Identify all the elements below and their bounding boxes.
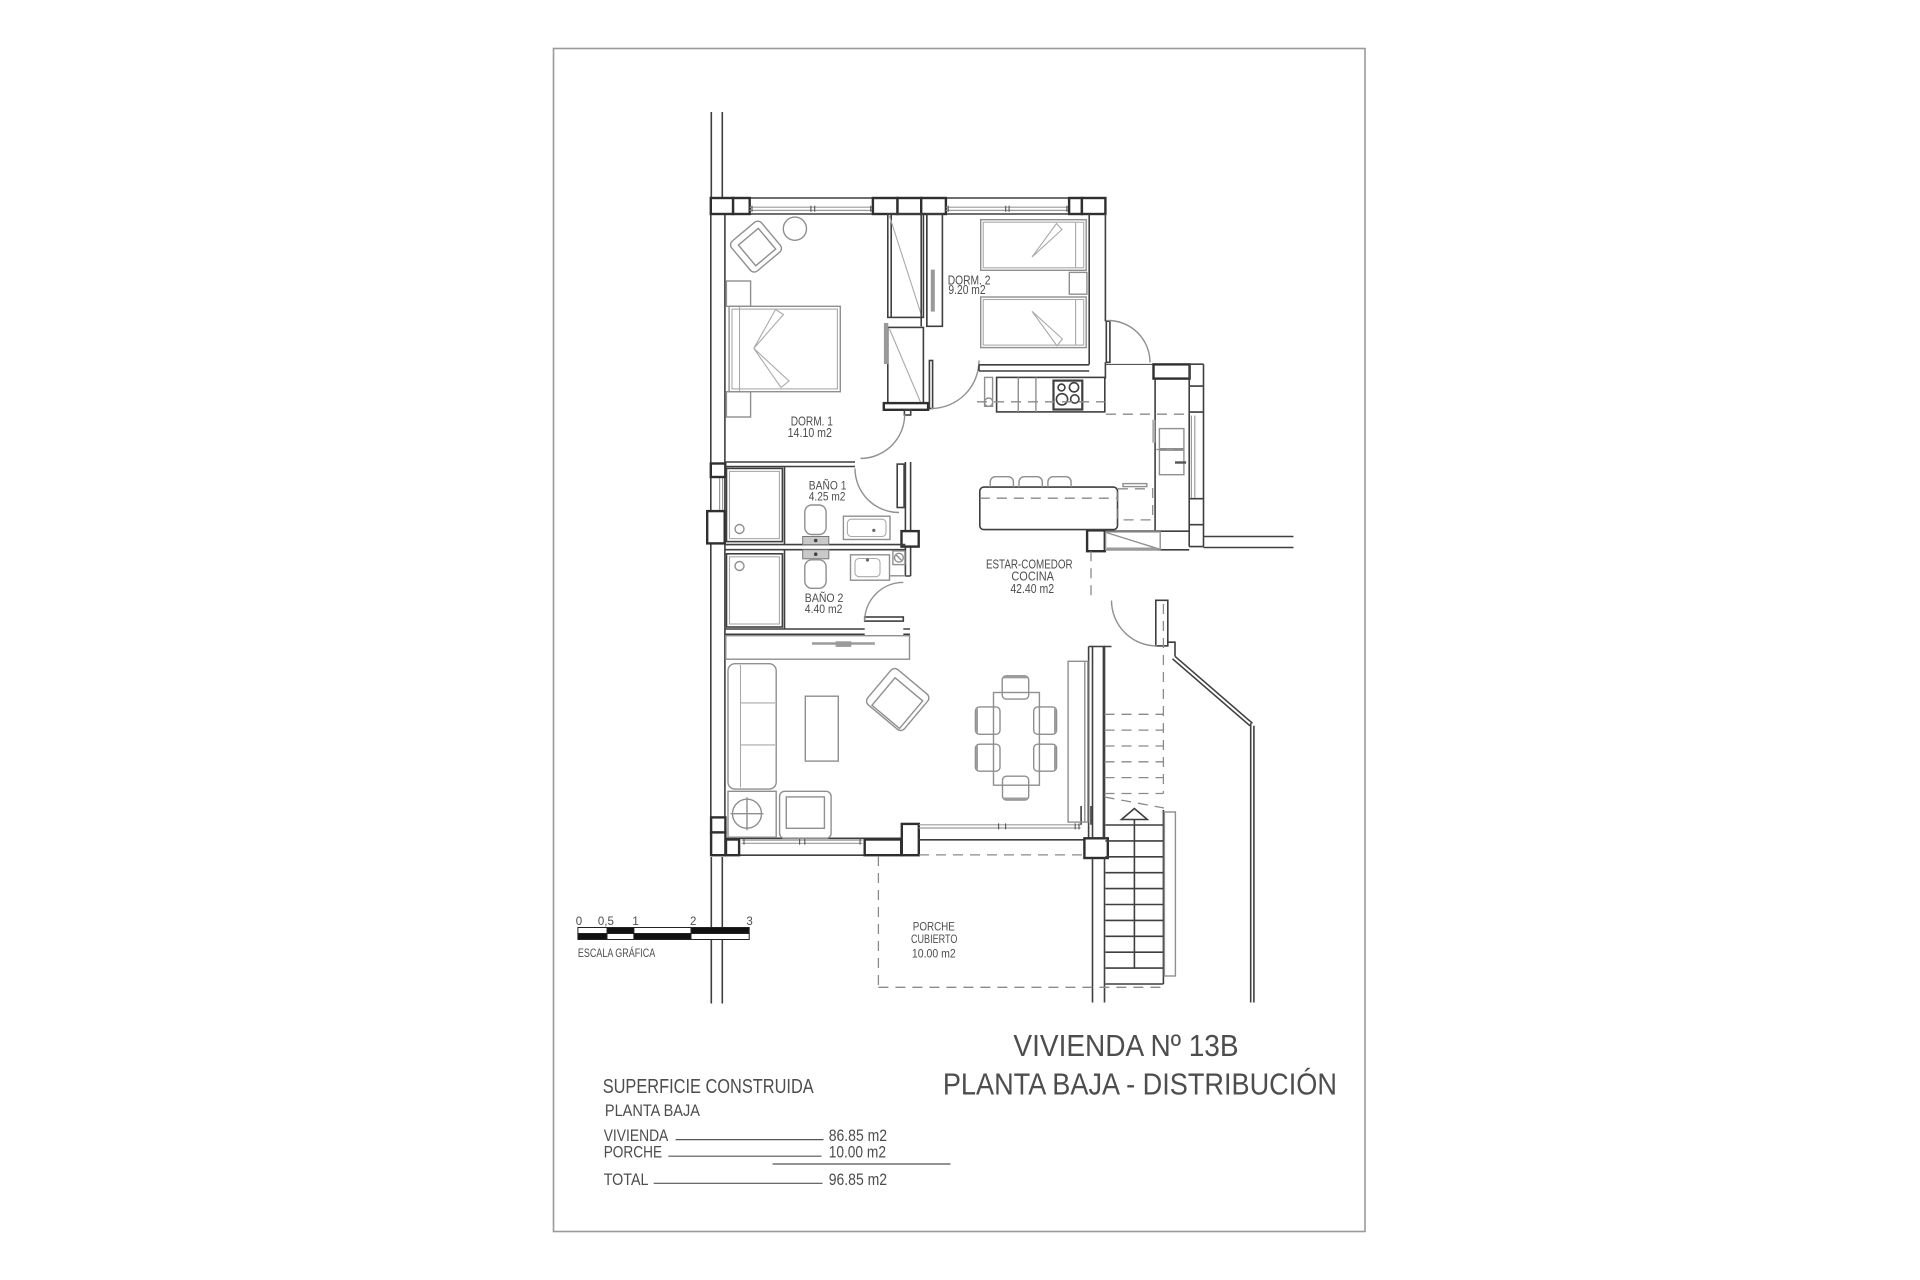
- svg-text:4.40 m2: 4.40 m2: [805, 602, 843, 616]
- svg-text:SUPERFICIE CONSTRUIDA: SUPERFICIE CONSTRUIDA: [603, 1076, 815, 1098]
- svg-text:3: 3: [746, 916, 752, 928]
- svg-text:10.00 m2: 10.00 m2: [912, 947, 956, 961]
- svg-text:VIVIENDA Nº 13B: VIVIENDA Nº 13B: [1013, 1028, 1238, 1063]
- svg-text:42.40 m2: 42.40 m2: [1010, 582, 1054, 596]
- svg-text:14.10 m2: 14.10 m2: [788, 426, 832, 440]
- svg-text:96.85 m2: 96.85 m2: [829, 1170, 887, 1189]
- svg-text:2: 2: [690, 916, 696, 928]
- svg-text:PLANTA BAJA - DISTRIBUCIÓN: PLANTA BAJA - DISTRIBUCIÓN: [943, 1066, 1337, 1101]
- svg-text:4.25 m2: 4.25 m2: [809, 490, 846, 504]
- svg-text:10.00 m2: 10.00 m2: [829, 1143, 886, 1162]
- svg-text:TOTAL: TOTAL: [604, 1170, 649, 1189]
- svg-text:0: 0: [576, 916, 582, 928]
- svg-text:PORCHE: PORCHE: [604, 1143, 662, 1162]
- svg-text:0,5: 0,5: [598, 916, 614, 928]
- svg-text:PLANTA BAJA: PLANTA BAJA: [605, 1101, 701, 1120]
- svg-text:CUBIERTO: CUBIERTO: [911, 932, 957, 946]
- svg-text:ESCALA GRÁFICA: ESCALA GRÁFICA: [578, 945, 655, 960]
- svg-text:1: 1: [632, 916, 638, 928]
- svg-text:9.20 m2: 9.20 m2: [948, 283, 985, 297]
